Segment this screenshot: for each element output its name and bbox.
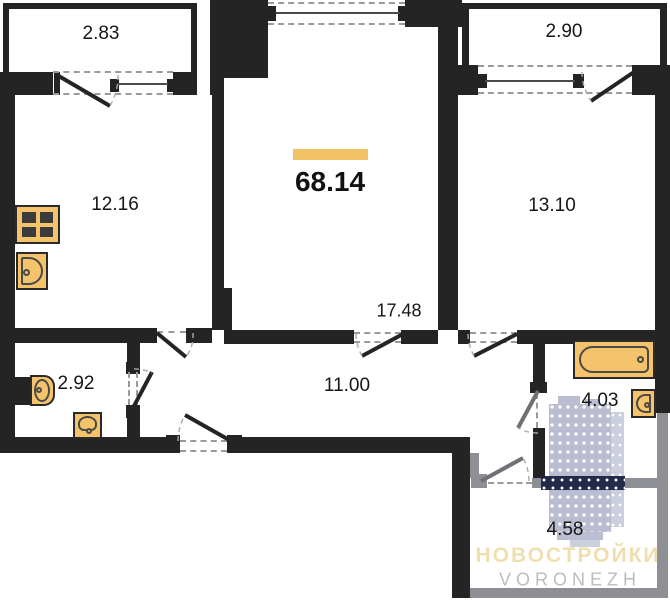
toilet-tank-icon xyxy=(13,377,30,405)
balcony-left-door-leaf xyxy=(57,75,110,106)
room-label-bathroom: 4.03 xyxy=(582,390,619,412)
door-arc xyxy=(186,333,193,357)
entrance-door-leaf xyxy=(185,415,231,441)
kitchen-door-leaf xyxy=(157,333,186,357)
room-label-storage: 4.58 xyxy=(547,519,584,541)
gray-door-leaves xyxy=(481,391,538,481)
wc-door-leaf xyxy=(134,372,152,406)
kitchen-sink-icon xyxy=(16,252,48,290)
room-label-hallway: 11.00 xyxy=(324,375,370,397)
bathtub-icon xyxy=(573,340,655,379)
door-arc xyxy=(468,334,474,356)
building-watermark-icon xyxy=(549,404,611,532)
watermark-subtitle: VORONEZH xyxy=(499,570,641,591)
washbasin-icon xyxy=(73,412,102,439)
door-arc xyxy=(110,75,118,106)
room-label-balcony-right: 2.90 xyxy=(546,21,583,43)
bath-sink-icon xyxy=(631,389,656,418)
room-label-kitchen: 12.16 xyxy=(91,194,139,216)
room-label-wc: 2.92 xyxy=(58,373,95,395)
room-label-living: 17.48 xyxy=(376,301,421,322)
watermark-title: НОВОСТРОЙКИ xyxy=(475,544,660,568)
door-arc xyxy=(356,334,362,356)
balcony-right-door-leaf xyxy=(591,72,634,101)
floor-plan: 68.14 2.83 12.16 2.90 13.10 17.48 11.00 … xyxy=(0,0,670,600)
room-label-bedroom: 13.10 xyxy=(528,195,576,217)
bedroom-door-leaf xyxy=(474,334,517,356)
living-door-leaf xyxy=(362,334,403,356)
door-arc xyxy=(582,72,591,101)
toilet-icon xyxy=(30,375,55,406)
accent-bar xyxy=(293,149,368,160)
building-watermark-icon xyxy=(558,396,580,404)
stove-icon xyxy=(15,205,60,244)
door-swing-arcs xyxy=(110,72,591,481)
door-arc xyxy=(523,458,529,481)
door-arc xyxy=(134,369,152,373)
total-area-label: 68.14 xyxy=(295,166,365,198)
building-watermark-icon xyxy=(541,476,625,490)
storage-door-leaf xyxy=(481,458,523,481)
door-arc xyxy=(518,428,538,433)
bathroom-door-leaf xyxy=(518,391,538,428)
door-arc xyxy=(178,415,185,441)
building-watermark-icon xyxy=(611,412,624,527)
room-label-balcony-left: 2.83 xyxy=(83,23,120,45)
